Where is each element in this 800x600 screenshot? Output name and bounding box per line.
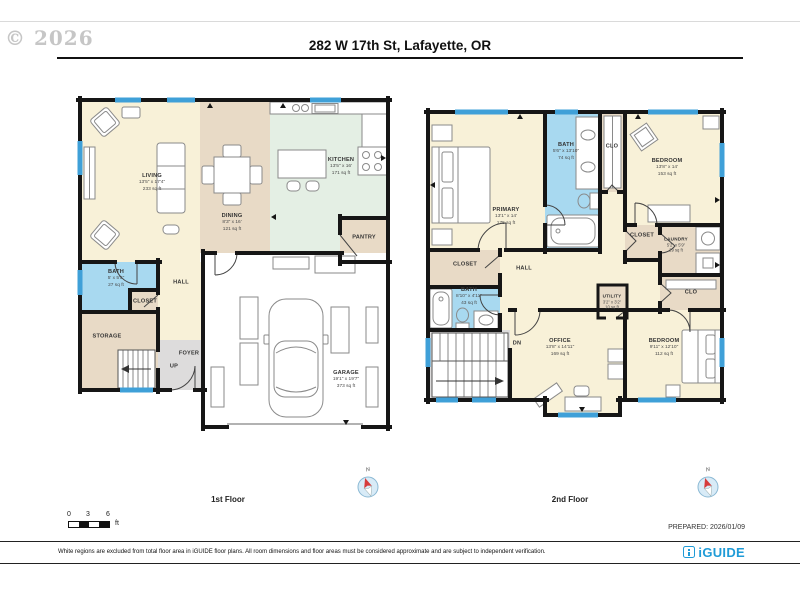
scale-tick-0: 0 <box>67 511 71 518</box>
prepared-date: PREPARED: 2026/01/09 <box>560 524 745 531</box>
room-label-utility: UTILITY 3'2" x 3'2" 10 sq ft <box>603 294 622 311</box>
floor-label-2nd: 2nd Floor <box>490 495 650 504</box>
range-icon <box>358 147 388 175</box>
room-label-bedroom-top: BEDROOM 13'8" x 14' 153 sq ft <box>652 158 683 178</box>
disclaimer-text: White regions are excluded from total fl… <box>58 549 618 555</box>
room-label-bath1: BATH 5' x 5'5" 27 sq ft <box>108 269 125 289</box>
compass-rose <box>695 474 721 500</box>
scale-bar-segments <box>68 521 110 528</box>
room-label-living: LIVING 13'5" x 17'4" 233 sq ft <box>139 173 165 193</box>
floor-plan-page: © 2026 282 W 17th St, Lafayette, OR <box>0 0 800 600</box>
floor-plan-1st: LIVING 13'5" x 17'4" 233 sq ft DINING 8'… <box>75 95 395 435</box>
room-label-closet1: CLOSET <box>133 298 157 305</box>
compass-north-label: N <box>365 467 370 474</box>
bathtub-icon <box>430 289 452 328</box>
room-label-clo-top: CLO <box>606 143 618 150</box>
vanity-icon <box>576 117 600 189</box>
room-label-clo-right: CLO <box>685 289 697 296</box>
compass-icon: N <box>355 467 381 507</box>
stairs-up-icon <box>118 350 155 388</box>
floor-plan-2nd: PRIMARY 13'1" x 14' 175 sq ft BATH 5'6" … <box>420 105 730 420</box>
room-label-foyer: FOYER <box>179 350 199 357</box>
room-label-primary: PRIMARY 13'1" x 14' 175 sq ft <box>493 207 520 227</box>
room-label-bath-hall: BATH 8'10" x 4'11" 43 sq ft <box>456 287 482 307</box>
footer-divider-top <box>0 541 800 542</box>
dining-table-icon <box>214 157 250 193</box>
room-label-up: UP <box>170 363 178 370</box>
compass-rose <box>355 474 381 500</box>
bed-icon <box>432 147 490 223</box>
floor-label-1st: 1st Floor <box>148 495 308 504</box>
room-label-hall1: HALL <box>173 279 189 286</box>
room-label-bedroom-bottom: BEDROOM 9'11" x 12'10" 112 sq ft <box>649 338 680 358</box>
washer-icon <box>696 227 720 250</box>
room-label-hall2: HALL <box>516 265 532 272</box>
sink-icon <box>474 311 498 329</box>
room-label-dining: DINING 8'3" x 16' 121 sq ft <box>222 213 243 233</box>
room-label-garage: GARAGE 19'1" x 19'7" 373 sq ft <box>333 370 359 390</box>
compass-north-label: N <box>705 467 710 474</box>
title-underline <box>57 57 743 59</box>
room-label-office: OFFICE 13'8" x 14'11" 169 sq ft <box>546 338 575 358</box>
footer-divider-bottom <box>0 563 800 564</box>
room-label-storage: STORAGE <box>93 333 122 340</box>
island-icon <box>278 150 326 178</box>
car-icon <box>264 299 328 417</box>
stairs-down-icon <box>432 333 508 397</box>
bathtub-icon <box>547 215 599 247</box>
scale-tick-6: 6 <box>106 511 110 518</box>
iguide-logo-text: iGUIDE <box>698 545 745 560</box>
scale-tick-3: 3 <box>86 511 90 518</box>
room-label-pantry: PANTRY <box>352 234 376 241</box>
room-label-closet-right: CLOSET <box>630 232 654 239</box>
top-divider <box>0 21 800 22</box>
page-title: 282 W 17th St, Lafayette, OR <box>0 38 800 53</box>
room-label-kitchen: KITCHEN 13'5" x 16' 171 sq ft <box>328 157 354 177</box>
room-label-dn: DN <box>513 340 521 347</box>
room-label-closet-left: CLOSET <box>453 261 477 268</box>
room-label-laundry: LAUNDRY 5'2" x 5'9" 29 sq ft <box>664 237 688 254</box>
scale-unit: ft <box>115 520 119 527</box>
iguide-brand: iGUIDE <box>630 544 745 560</box>
room-label-bath-primary: BATH 5'6" x 13'10" 74 sq ft <box>553 142 579 162</box>
scale-bar: 0 3 6 ft <box>68 511 138 531</box>
compass-icon: N <box>695 467 721 507</box>
iguide-logo-icon <box>683 546 695 558</box>
bed-icon <box>682 330 722 383</box>
